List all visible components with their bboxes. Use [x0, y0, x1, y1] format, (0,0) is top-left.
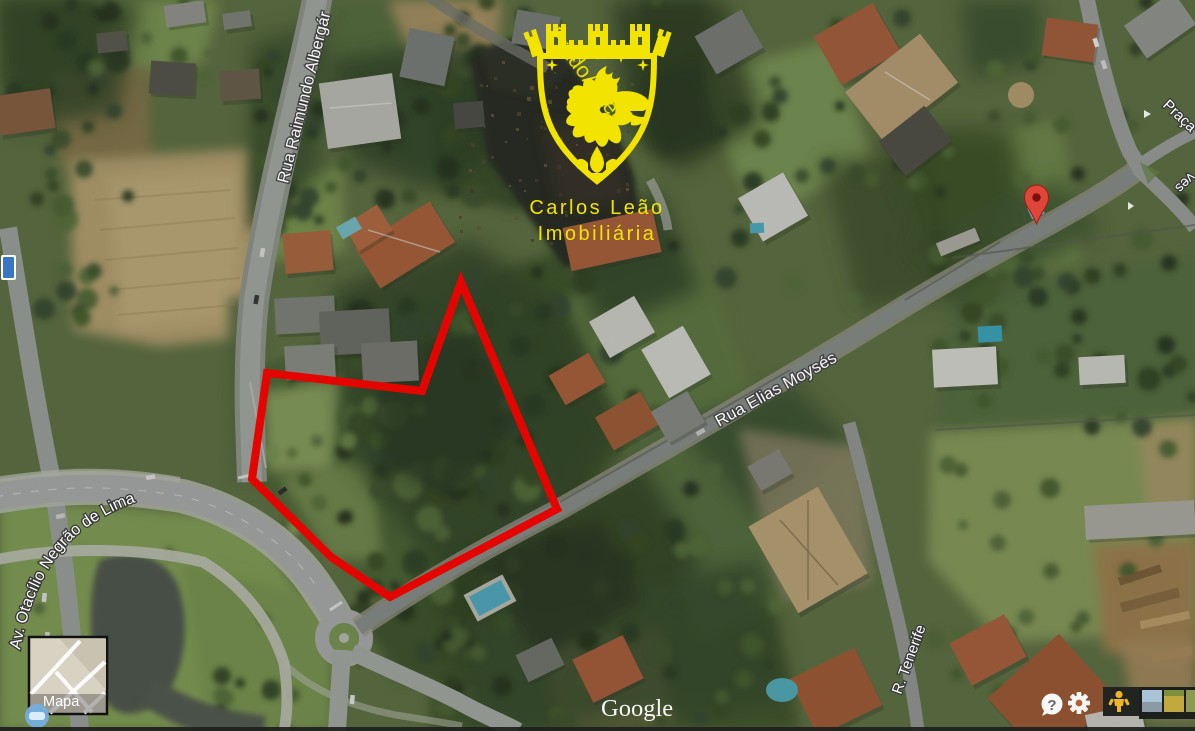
svg-text:Mapa: Mapa	[43, 694, 80, 710]
svg-text:Imobiliária: Imobiliária	[538, 223, 657, 245]
svg-text:Google: Google	[601, 695, 673, 722]
svg-text:?: ?	[1047, 697, 1056, 714]
svg-text:Carlos Leão: Carlos Leão	[529, 197, 664, 219]
